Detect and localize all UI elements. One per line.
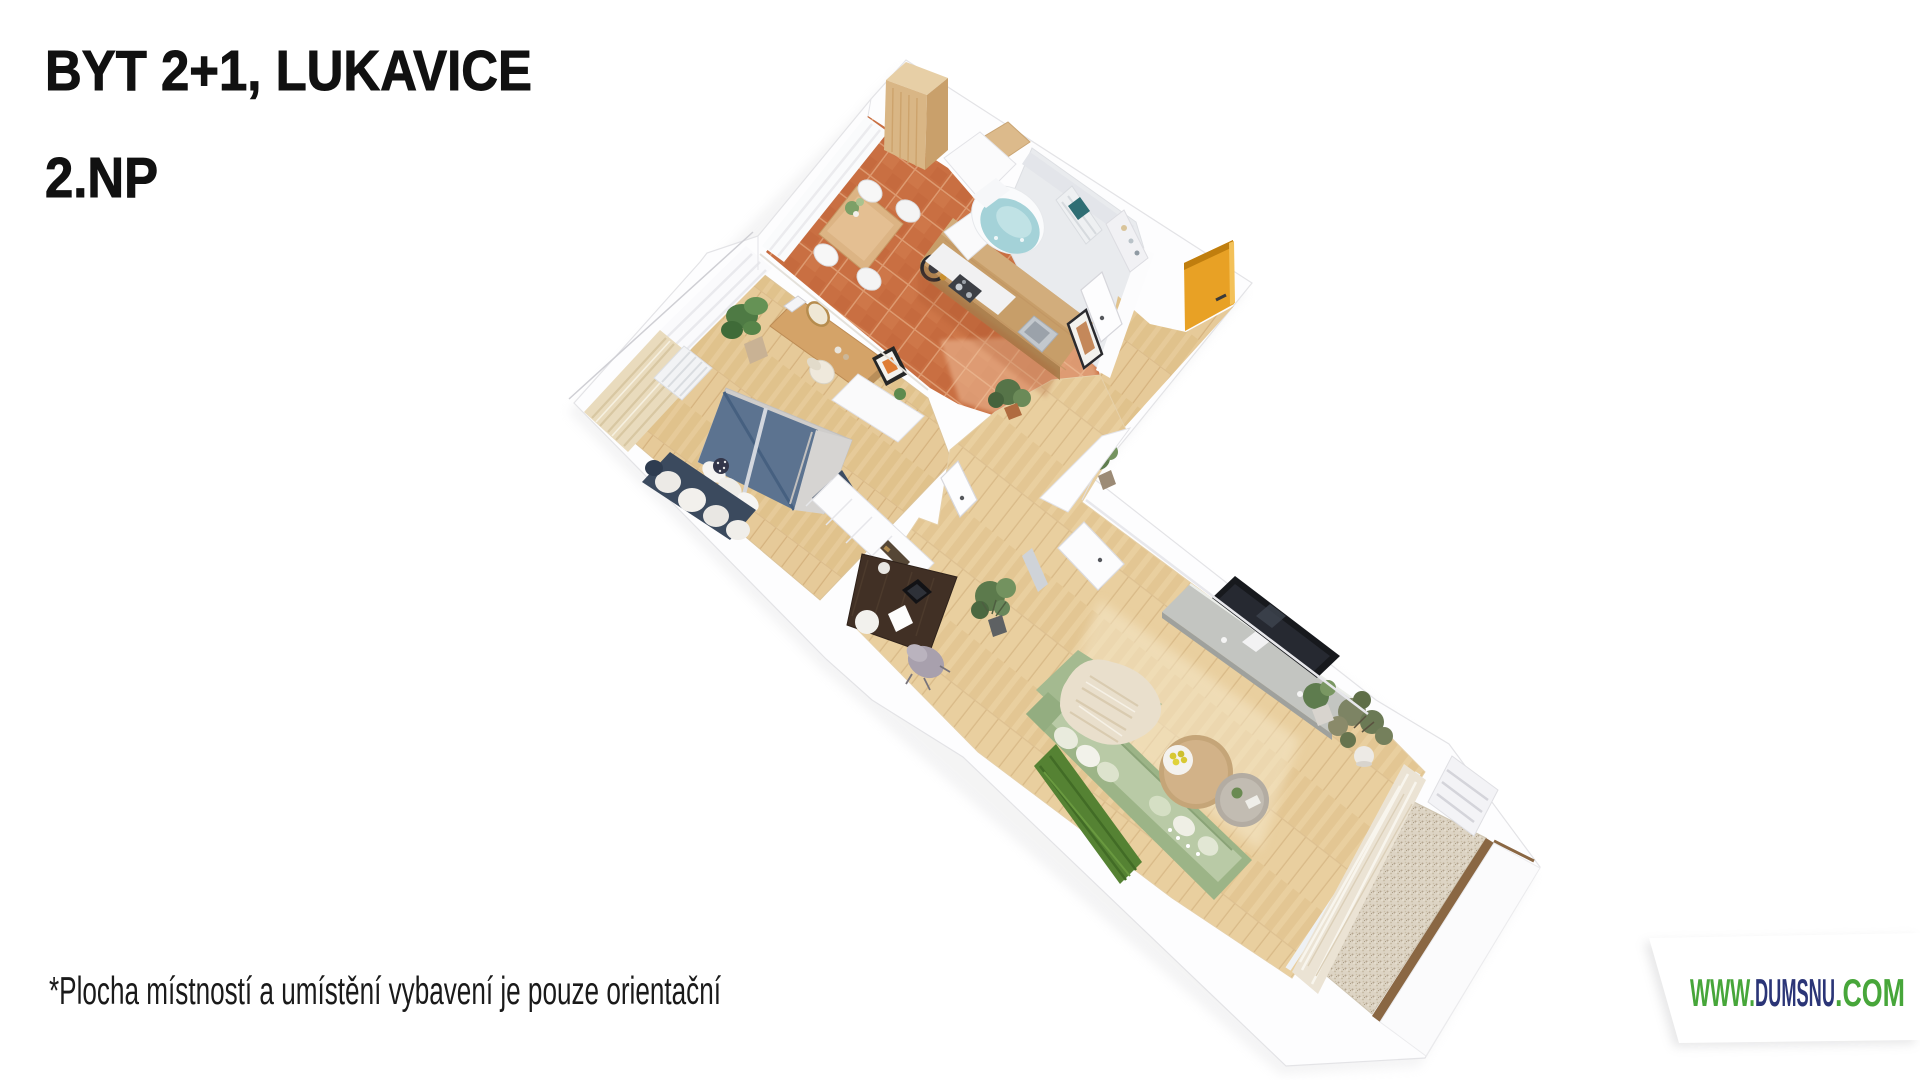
svg-text:*Plocha místností a umístění v: *Plocha místností a umístění vybavení je… bbox=[49, 970, 721, 1013]
svg-text:BYT 2+1, LUKAVICE: BYT 2+1, LUKAVICE bbox=[45, 39, 532, 103]
svg-text:.COM: .COM bbox=[1835, 972, 1905, 1015]
svg-text:DUMSNU: DUMSNU bbox=[1755, 972, 1835, 1015]
svg-text:2.NP: 2.NP bbox=[45, 146, 158, 210]
svg-text:WWW.: WWW. bbox=[1690, 972, 1755, 1015]
